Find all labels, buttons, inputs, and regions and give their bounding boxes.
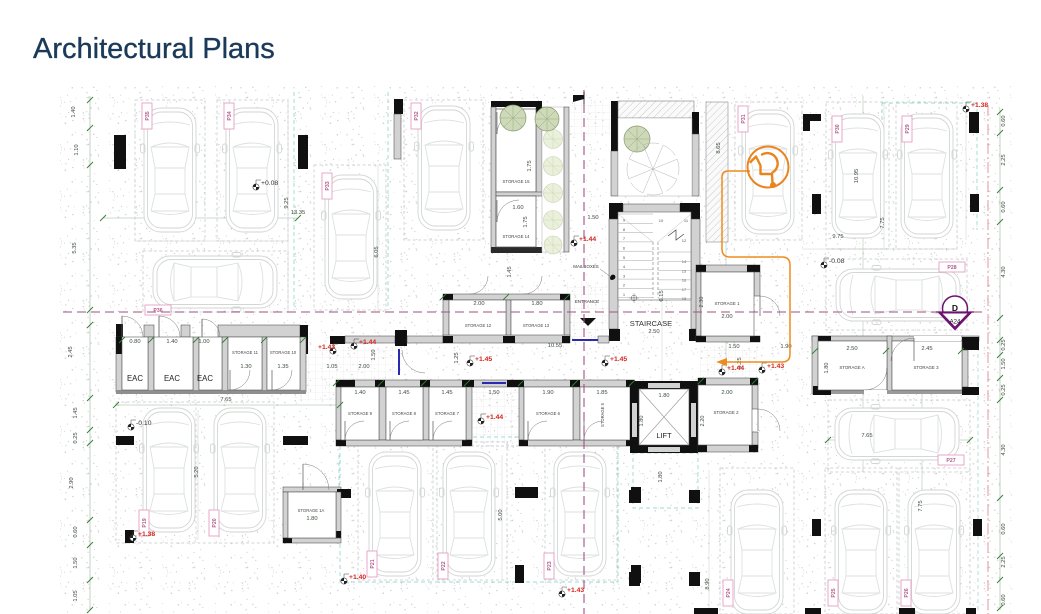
svg-text:Architectural Plans: Architectural Plans xyxy=(33,33,275,65)
svg-text:+1.43: +1.43 xyxy=(567,587,584,594)
svg-text:1.45: 1.45 xyxy=(441,390,452,396)
svg-text:0.80: 0.80 xyxy=(129,339,140,345)
svg-text:12: 12 xyxy=(682,238,687,243)
svg-text:+1.45: +1.45 xyxy=(475,356,492,363)
svg-text:1.10: 1.10 xyxy=(74,144,80,155)
svg-text:0.25: 0.25 xyxy=(1001,339,1007,350)
svg-text:8.65: 8.65 xyxy=(716,142,722,153)
svg-text:STORAGE 1A: STORAGE 1A xyxy=(298,508,325,513)
svg-text:P34: P34 xyxy=(227,111,233,120)
svg-text:4.30: 4.30 xyxy=(1001,266,1007,277)
svg-text:2.00: 2.00 xyxy=(473,301,484,307)
svg-text:5.00: 5.00 xyxy=(498,509,504,520)
svg-text:6.15: 6.15 xyxy=(659,290,665,301)
svg-text:0.60: 0.60 xyxy=(1001,201,1007,212)
svg-text:6.05: 6.05 xyxy=(374,246,380,257)
svg-text:+1.43: +1.43 xyxy=(767,363,784,370)
svg-text:10.95: 10.95 xyxy=(854,169,860,184)
svg-text:7.65: 7.65 xyxy=(861,433,872,439)
svg-text:2.00: 2.00 xyxy=(358,364,369,370)
svg-text:MAILBOXES: MAILBOXES xyxy=(573,264,598,269)
svg-text:EAC: EAC xyxy=(127,374,143,383)
svg-text:STORAGE 15: STORAGE 15 xyxy=(503,179,531,184)
svg-text:13.35: 13.35 xyxy=(291,210,306,216)
svg-text:P33: P33 xyxy=(325,181,331,190)
svg-text:EAC: EAC xyxy=(164,374,180,383)
svg-text:+1.44: +1.44 xyxy=(579,236,596,243)
svg-text:P22: P22 xyxy=(441,561,447,570)
svg-text:2.25: 2.25 xyxy=(1001,556,1007,567)
svg-text:1.50: 1.50 xyxy=(488,390,499,396)
svg-text:4.30: 4.30 xyxy=(1001,444,1007,455)
svg-text:STORAGE 1: STORAGE 1 xyxy=(714,301,740,306)
svg-text:+1.38: +1.38 xyxy=(138,531,155,538)
svg-text:10: 10 xyxy=(659,218,664,223)
svg-text:P27: P27 xyxy=(946,458,955,464)
svg-text:1.45: 1.45 xyxy=(398,390,409,396)
svg-text:2.00: 2.00 xyxy=(721,314,732,320)
svg-text:P24: P24 xyxy=(726,588,732,597)
svg-text:1.75: 1.75 xyxy=(523,216,529,227)
svg-text:1.45: 1.45 xyxy=(73,407,79,418)
svg-text:0.60: 0.60 xyxy=(1001,594,1007,605)
svg-text:5.35: 5.35 xyxy=(72,242,78,253)
svg-text:0.60: 0.60 xyxy=(73,526,79,537)
svg-text:P25: P25 xyxy=(831,588,837,597)
svg-text:9.25: 9.25 xyxy=(284,197,290,208)
svg-text:2.00: 2.00 xyxy=(721,390,732,396)
svg-text:1.00: 1.00 xyxy=(198,339,209,345)
svg-text:1.50: 1.50 xyxy=(728,344,739,350)
svg-text:7.75: 7.75 xyxy=(918,500,924,511)
svg-text:1.05: 1.05 xyxy=(326,364,337,370)
svg-text:1.50: 1.50 xyxy=(587,215,598,221)
svg-text:1.90: 1.90 xyxy=(542,390,553,396)
svg-text:P20: P20 xyxy=(212,518,218,527)
svg-text:EAC: EAC xyxy=(197,374,213,383)
svg-text:+1.44: +1.44 xyxy=(486,414,503,421)
svg-text:STORAGE 10: STORAGE 10 xyxy=(270,350,297,355)
svg-text:1.25: 1.25 xyxy=(454,352,460,363)
svg-text:2.50: 2.50 xyxy=(846,346,857,352)
svg-text:P29: P29 xyxy=(905,124,911,133)
svg-text:+1.43: +1.43 xyxy=(318,344,335,351)
svg-text:1.80: 1.80 xyxy=(531,301,542,307)
svg-text:1.85: 1.85 xyxy=(596,390,607,396)
svg-text:STORAGE A: STORAGE A xyxy=(839,365,864,370)
svg-text:P28: P28 xyxy=(947,265,956,271)
svg-text:0.60: 0.60 xyxy=(1001,115,1007,126)
svg-text:1.50: 1.50 xyxy=(1001,358,1007,369)
svg-text:2.45: 2.45 xyxy=(68,346,74,357)
svg-text:5.20: 5.20 xyxy=(194,466,200,477)
svg-text:P30: P30 xyxy=(835,124,841,133)
svg-text:STORAGE 9: STORAGE 9 xyxy=(348,411,373,416)
svg-text:P26: P26 xyxy=(904,588,910,597)
svg-text:1.35: 1.35 xyxy=(277,364,288,370)
svg-text:1.80: 1.80 xyxy=(306,516,317,522)
svg-text:STAIRCASE: STAIRCASE xyxy=(630,319,672,328)
svg-text:2.50: 2.50 xyxy=(648,329,659,335)
svg-text:7.75: 7.75 xyxy=(880,217,886,228)
svg-text:1.80: 1.80 xyxy=(659,393,670,399)
svg-text:1.05: 1.05 xyxy=(73,590,79,601)
svg-text:0.25: 0.25 xyxy=(1001,384,1007,395)
svg-text:2.20: 2.20 xyxy=(700,416,706,427)
svg-text:1.50: 1.50 xyxy=(73,557,79,568)
svg-text:A24: A24 xyxy=(950,320,961,326)
svg-text:+1.44: +1.44 xyxy=(727,365,744,372)
svg-text:+1.45: +1.45 xyxy=(610,356,627,363)
svg-text:LIFT: LIFT xyxy=(656,431,672,440)
svg-text:+1.44: +1.44 xyxy=(359,339,376,346)
svg-text:P31: P31 xyxy=(741,114,747,123)
svg-text:P19: P19 xyxy=(142,518,148,527)
svg-text:1.30: 1.30 xyxy=(240,364,251,370)
svg-text:-0.10: -0.10 xyxy=(136,420,152,427)
svg-text:1.60: 1.60 xyxy=(512,205,523,211)
svg-text:0.25: 0.25 xyxy=(73,432,79,443)
svg-text:P21: P21 xyxy=(370,559,376,568)
svg-text:P32: P32 xyxy=(414,111,420,120)
svg-text:1.80: 1.80 xyxy=(824,363,830,374)
svg-text:STORAGE 14: STORAGE 14 xyxy=(503,234,531,239)
svg-text:1.40: 1.40 xyxy=(71,106,77,117)
svg-text:STORAGE 12: STORAGE 12 xyxy=(465,323,492,328)
svg-text:STORAGE 2: STORAGE 2 xyxy=(713,410,739,415)
svg-text:ENTRANCE: ENTRANCE xyxy=(575,299,599,304)
svg-text:+1.38: +1.38 xyxy=(971,102,988,109)
svg-text:STORAGE 7: STORAGE 7 xyxy=(435,411,460,416)
svg-text:2.45: 2.45 xyxy=(921,346,932,352)
svg-text:P35: P35 xyxy=(145,111,151,120)
svg-text:P23: P23 xyxy=(547,561,553,570)
svg-text:1.75: 1.75 xyxy=(527,160,533,171)
svg-text:-0.08: -0.08 xyxy=(829,258,845,265)
svg-text:STORAGE 3: STORAGE 3 xyxy=(913,365,939,370)
svg-text:7.65: 7.65 xyxy=(220,397,231,403)
svg-text:1.45: 1.45 xyxy=(507,266,513,277)
svg-text:2.25: 2.25 xyxy=(1001,154,1007,165)
svg-text:1.40: 1.40 xyxy=(166,339,177,345)
svg-text:2.90: 2.90 xyxy=(69,477,75,488)
svg-text:1.80: 1.80 xyxy=(658,471,664,482)
svg-text:10.55: 10.55 xyxy=(548,343,563,349)
svg-text:+1.40: +1.40 xyxy=(349,574,366,581)
svg-text:+0.08: +0.08 xyxy=(261,180,278,187)
svg-text:9.75: 9.75 xyxy=(832,234,843,240)
svg-text:STORAGE 13: STORAGE 13 xyxy=(523,323,550,328)
svg-text:D: D xyxy=(952,303,958,313)
svg-text:STORAGE 11: STORAGE 11 xyxy=(232,350,259,355)
svg-text:STORAGE 8: STORAGE 8 xyxy=(392,411,417,416)
svg-text:8.90: 8.90 xyxy=(705,578,711,589)
svg-text:P36: P36 xyxy=(153,308,162,314)
svg-text:1.80: 1.80 xyxy=(639,416,645,427)
svg-text:STORAGE 6: STORAGE 6 xyxy=(536,411,561,416)
svg-text:1.40: 1.40 xyxy=(354,390,365,396)
svg-text:STORAGE 5: STORAGE 5 xyxy=(600,402,605,427)
svg-text:1.50: 1.50 xyxy=(371,349,377,360)
svg-text:2.30: 2.30 xyxy=(699,297,705,308)
svg-text:0.60: 0.60 xyxy=(1001,523,1007,534)
